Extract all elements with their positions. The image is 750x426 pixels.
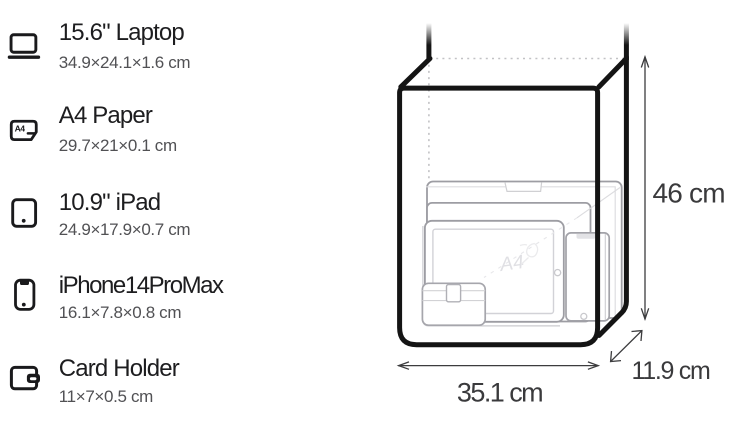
svg-text:11.9 cm: 11.9 cm [632,357,710,385]
svg-text:35.1 cm: 35.1 cm [457,378,542,408]
svg-text:46 cm: 46 cm [653,178,725,209]
